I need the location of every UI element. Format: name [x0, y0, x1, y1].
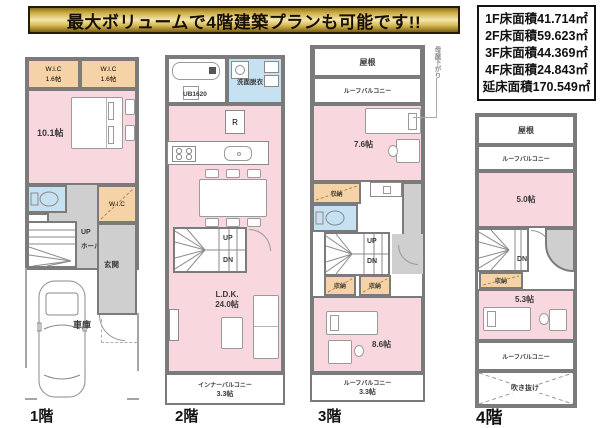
area-3f: 3F床面積44.369㎡	[485, 45, 588, 62]
wic-size: 1.6帖	[46, 73, 62, 83]
dining-table-icon	[199, 179, 267, 217]
roof-slope-note: 母屋下がり	[431, 46, 441, 79]
garage-wall-right	[137, 313, 139, 371]
garage-wall-left	[25, 268, 27, 368]
balcony-label: ルーフバルコニー	[344, 378, 392, 387]
sofa-seam	[254, 326, 278, 327]
toilet-icon	[29, 187, 65, 211]
headline-text: 最大ボリュームで4階建築プランも可能です!!	[67, 8, 421, 33]
ldk-label: L.D.K.	[215, 290, 238, 299]
stairs-icon	[175, 229, 245, 271]
floor3-roof-balcony-top: ルーフバルコニー	[313, 77, 422, 104]
washer-icon	[231, 61, 249, 79]
pillow-icon	[330, 315, 339, 331]
floor3-toilet-room	[312, 204, 358, 232]
floor4-roof-balcony-bottom: ルーフバルコニー	[477, 341, 575, 371]
stairs-icon	[479, 230, 527, 270]
bed-icon	[326, 311, 378, 335]
floor4-roof: 屋根	[477, 115, 575, 145]
wic-label: W.I.C	[46, 66, 62, 73]
floor4-stairs	[477, 228, 529, 272]
faucet-icon	[209, 67, 216, 74]
porch-step-dashed	[101, 319, 137, 343]
drain-icon	[237, 152, 241, 156]
pillow-icon	[108, 126, 114, 144]
car-icon	[37, 279, 87, 399]
floor1-toilet-room	[27, 185, 67, 213]
floor4-void: 吹き抜け	[477, 371, 575, 406]
floorplan-sheet: 最大ボリュームで4階建築プランも可能です!! 1F床面積41.714㎡ 2F床面…	[0, 0, 600, 428]
balcony-size-label: 3.3帖	[217, 389, 234, 399]
chair-icon	[226, 169, 240, 178]
floor2-label: 2階	[175, 409, 198, 426]
floor1-wic-right: W.I.C 1.6帖	[80, 59, 137, 89]
bath-label: UB1620	[183, 91, 207, 98]
roof-label: 屋根	[360, 57, 376, 68]
chair-icon	[205, 169, 219, 178]
stairs-up-label: UP	[81, 229, 91, 237]
floor1-wic-left: W.I.C 1.6帖	[27, 59, 80, 89]
floor1-stairs	[27, 221, 77, 268]
balcony-label: ルーフバルコニー	[344, 86, 392, 95]
vanity-icon	[264, 61, 279, 73]
floor4-closet: 収納	[479, 272, 523, 289]
bed-icon	[71, 97, 123, 149]
floor2-plan: UB1620 洗面脱衣 R	[165, 55, 285, 428]
floor3-label: 3階	[318, 409, 341, 426]
vanity-icon	[264, 75, 279, 87]
floor2-inner-balcony: インナーバルコニー 3.3帖	[165, 373, 285, 405]
balcony-label: ルーフバルコニー	[502, 352, 550, 361]
chair-icon	[388, 145, 398, 157]
desk-icon	[549, 309, 567, 331]
bathtub-icon	[172, 62, 220, 80]
pillow-icon	[108, 102, 114, 120]
closet-diagonal	[314, 184, 359, 202]
washer-drum	[235, 65, 245, 75]
stairs-up-label: UP	[223, 235, 233, 243]
closet-diagonal	[361, 277, 389, 294]
floor3-hall-corner	[402, 182, 423, 240]
coffee-table-icon	[221, 317, 243, 349]
sink-icon	[383, 186, 391, 194]
ldk-size-label: 24.0帖	[215, 299, 239, 310]
desk-icon	[396, 139, 420, 163]
kitchen-counter	[167, 141, 269, 165]
floor3-closet-b: 収納	[324, 275, 356, 296]
floor3-closet-a: 収納	[312, 182, 361, 204]
room-b-size-label: 5.3帖	[515, 296, 534, 305]
balcony-label: ルーフバルコニー	[502, 154, 550, 163]
chair-icon	[247, 218, 261, 227]
balcony-size-label: 3.3帖	[359, 387, 376, 397]
washroom-label: 洗面脱衣	[237, 79, 263, 86]
floor4-roof-balcony-top: ルーフバルコニー	[477, 145, 575, 171]
stairs-dn-label: DN	[223, 257, 233, 265]
stove-icon	[172, 146, 196, 162]
stairs-dn-label: DN	[367, 258, 377, 266]
floor3-roof: 屋根	[313, 47, 422, 77]
toilet-icon	[314, 206, 354, 230]
note-leader-line	[413, 78, 437, 118]
garage-label: 車庫	[73, 321, 91, 331]
nightstand-icon	[125, 125, 135, 141]
area-total: 延床面積170.549㎡	[483, 79, 591, 96]
void-label: 吹き抜け	[509, 385, 541, 393]
stairs-icon	[29, 223, 75, 266]
area-1f: 1F床面積41.714㎡	[485, 11, 588, 28]
shelf-icon	[169, 309, 179, 341]
bed-icon	[483, 307, 531, 331]
sofa-icon	[253, 295, 279, 359]
area-4f: 4F床面積24.843㎡	[485, 62, 588, 79]
wic-label: W.I.C	[101, 66, 117, 73]
entrance-label: 玄関	[104, 261, 119, 269]
nightstand-icon	[125, 99, 135, 115]
stairs-dn-label: DN	[517, 256, 527, 264]
stairs-up-label: UP	[367, 238, 377, 246]
floor4-room-a: 5.0帖	[477, 171, 575, 228]
garage-stub-left	[25, 398, 37, 400]
garage-stub-right	[127, 398, 139, 400]
desk-icon	[328, 340, 352, 364]
floor3-closet-c: 収納	[359, 275, 391, 296]
closet-diagonal	[481, 274, 521, 287]
room-a-size-label: 5.0帖	[516, 194, 535, 205]
ldk-label-group: L.D.K. 24.0帖	[205, 289, 249, 311]
area-2f: 2F床面積59.623㎡	[485, 28, 588, 45]
chair-icon	[539, 313, 549, 325]
balcony-label: インナーバルコニー	[198, 380, 252, 389]
floor3-plan: 屋根 ルーフバルコニー 7.6帖 収納	[310, 45, 425, 428]
closet-diagonal	[99, 187, 135, 221]
chair-icon	[247, 169, 261, 178]
chair-icon	[205, 218, 219, 227]
bed-fold-line	[106, 98, 107, 148]
stairs-icon	[326, 234, 388, 274]
mini-counter	[370, 182, 402, 197]
bedroom-size-label: 10.1帖	[37, 129, 64, 139]
wic-size: 1.6帖	[101, 73, 117, 83]
room-b-size-label: 8.6帖	[372, 341, 391, 350]
floor2-stairs	[173, 227, 247, 273]
floor1-wic-middle: W.I.C	[97, 185, 137, 223]
fridge-icon: R	[225, 110, 245, 134]
roof-label: 屋根	[518, 125, 534, 136]
chair-icon	[354, 345, 364, 357]
headline-banner: 最大ボリュームで4階建築プランも可能です!!	[28, 6, 460, 34]
floor4-plan: 屋根 ルーフバルコニー 5.0帖 DN	[475, 113, 577, 428]
floor3-stairs	[324, 232, 390, 276]
closet-diagonal	[326, 277, 354, 294]
floor1-label: 1階	[30, 409, 53, 426]
floor1-plan: W.I.C 1.6帖 W.I.C 1.6帖 10.1帖	[25, 57, 139, 428]
floor-area-box: 1F床面積41.714㎡ 2F床面積59.623㎡ 3F床面積44.369㎡ 4…	[477, 5, 596, 101]
sink-icon	[224, 146, 252, 161]
chair-icon	[226, 218, 240, 227]
pillow-icon	[487, 311, 496, 327]
room-a-size-label: 7.6帖	[354, 141, 373, 150]
floor3-roof-balcony-bottom: ルーフバルコニー 3.3帖	[310, 373, 425, 402]
fridge-label: R	[232, 118, 238, 127]
floor4-label: 4階	[476, 409, 502, 428]
